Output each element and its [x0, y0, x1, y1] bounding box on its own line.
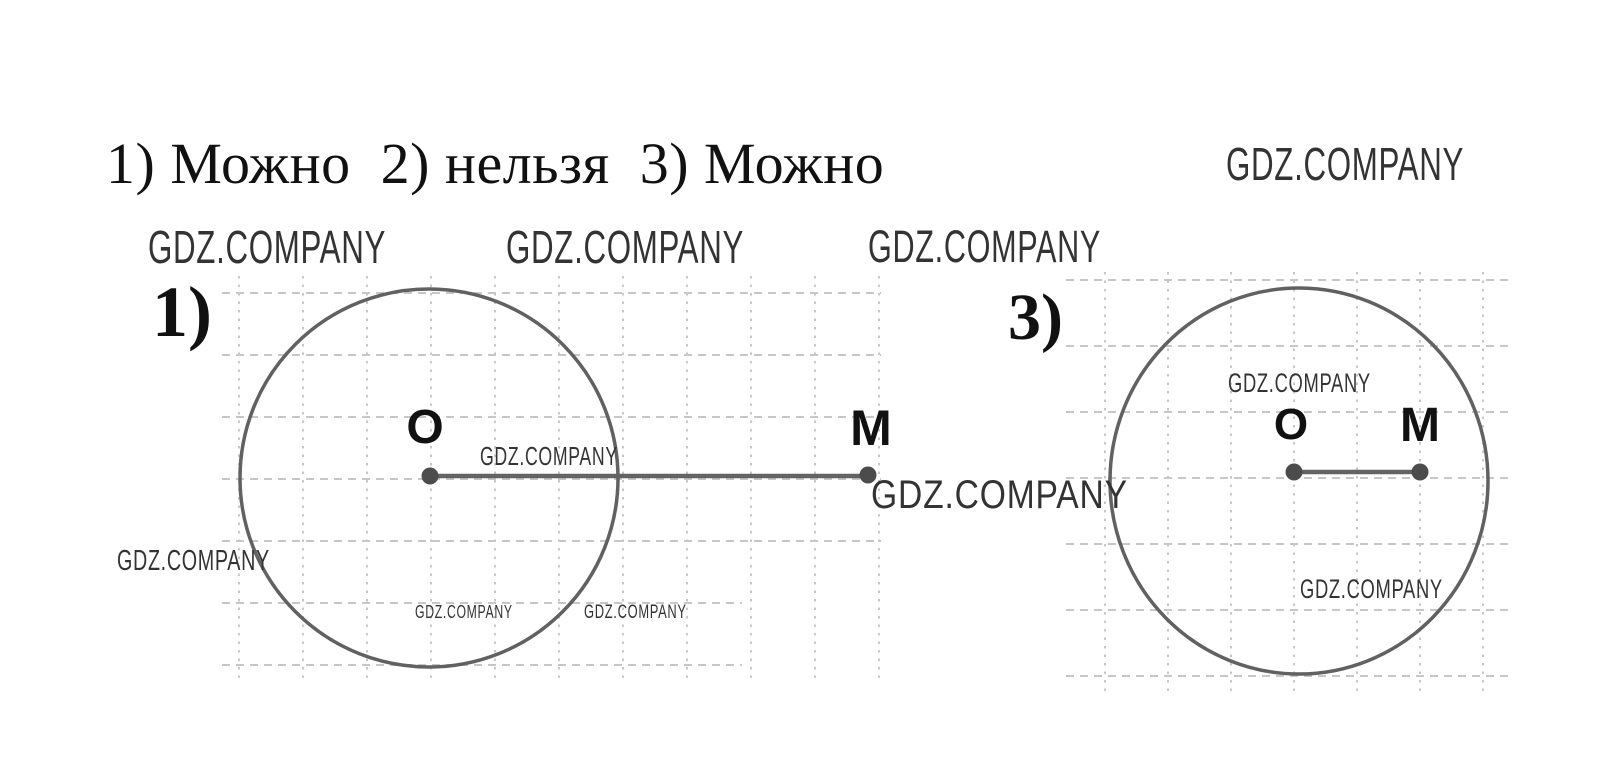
watermark-top-center: GDZ.COMPANY: [506, 224, 744, 270]
watermark-far-top-right: GDZ.COMPANY: [1226, 141, 1464, 187]
answer-sheet: 1) Можно 2) нельзя 3) Можно 1) 3) O M O …: [0, 0, 1623, 776]
figure1-point-O-label: O: [406, 404, 443, 452]
watermark-below-M: GDZ.COMPANY: [871, 475, 1128, 515]
watermark-fig3-upper: GDZ.COMPANY: [1228, 370, 1371, 397]
watermark-top-right: GDZ.COMPANY: [868, 224, 1101, 269]
watermark-fig1-bottom-right: GDZ.COMPANY: [584, 603, 687, 622]
diagram-canvas: [0, 0, 1623, 776]
figure3-point-M-label: M: [1400, 402, 1440, 450]
figure3-grid: [1066, 272, 1512, 691]
watermark-fig1-bottom-left: GDZ.COMPANY: [415, 603, 513, 621]
answer-title: 1) Можно 2) нельзя 3) Можно: [106, 135, 884, 193]
figure1-label: 1): [152, 276, 212, 348]
figure1-point-O-dot: [422, 468, 439, 485]
watermark-left-side: GDZ.COMPANY: [117, 547, 270, 576]
watermark-fig3-lower: GDZ.COMPANY: [1300, 576, 1443, 603]
figure3-label: 3): [1008, 285, 1063, 351]
watermark-fig1-midline: GDZ.COMPANY: [480, 443, 618, 469]
figure3-point-O-label: O: [1274, 403, 1308, 447]
figure3-point-O-dot: [1286, 464, 1303, 481]
figure1-point-M-label: M: [850, 403, 892, 453]
watermark-top-left: GDZ.COMPANY: [148, 224, 386, 270]
figure3-point-M-dot: [1412, 464, 1429, 481]
